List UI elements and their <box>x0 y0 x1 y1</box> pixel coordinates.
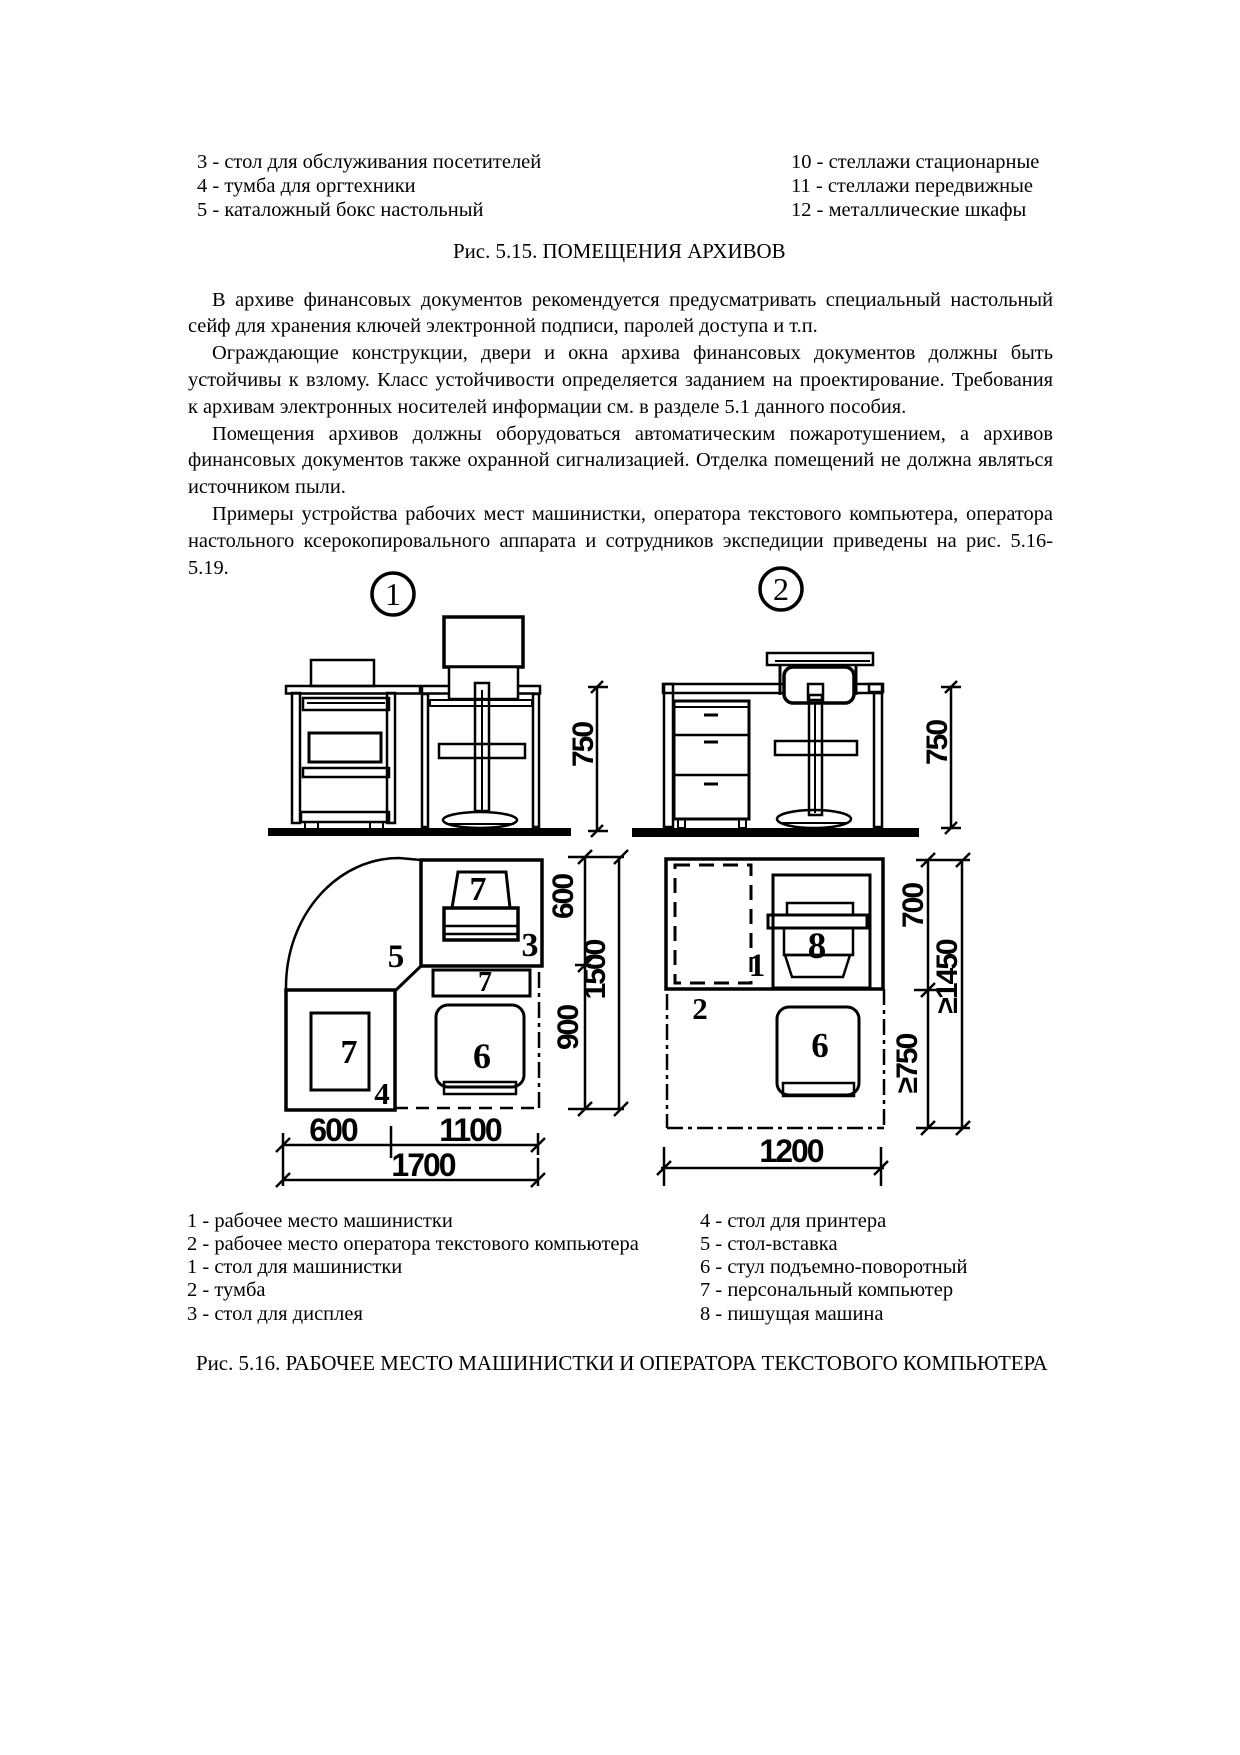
svg-text:1500: 1500 <box>579 939 612 999</box>
svg-text:≥750: ≥750 <box>891 1033 924 1093</box>
svg-text:4: 4 <box>374 1076 390 1111</box>
svg-text:3: 3 <box>522 927 539 964</box>
svg-text:7: 7 <box>478 967 492 998</box>
svg-text:750: 750 <box>921 720 954 765</box>
svg-text:600: 600 <box>547 874 580 919</box>
svg-text:7: 7 <box>470 871 487 908</box>
svg-text:1100: 1100 <box>439 1112 502 1148</box>
svg-text:7: 7 <box>341 1034 358 1071</box>
svg-text:1200: 1200 <box>759 1133 823 1169</box>
svg-text:1: 1 <box>749 948 766 984</box>
svg-text:6: 6 <box>811 1026 829 1065</box>
svg-text:8: 8 <box>808 926 827 967</box>
svg-text:600: 600 <box>309 1112 358 1148</box>
svg-text:1700: 1700 <box>391 1147 455 1183</box>
svg-text:5: 5 <box>388 939 405 975</box>
svg-text:2: 2 <box>773 571 789 607</box>
svg-text:700: 700 <box>897 883 930 928</box>
svg-text:2: 2 <box>692 991 708 1026</box>
svg-text:1: 1 <box>385 576 401 612</box>
svg-text:6: 6 <box>473 1036 491 1076</box>
svg-text:750: 750 <box>567 722 600 767</box>
svg-text:900: 900 <box>552 1005 585 1050</box>
svg-text:≥1450: ≥1450 <box>931 939 964 1014</box>
